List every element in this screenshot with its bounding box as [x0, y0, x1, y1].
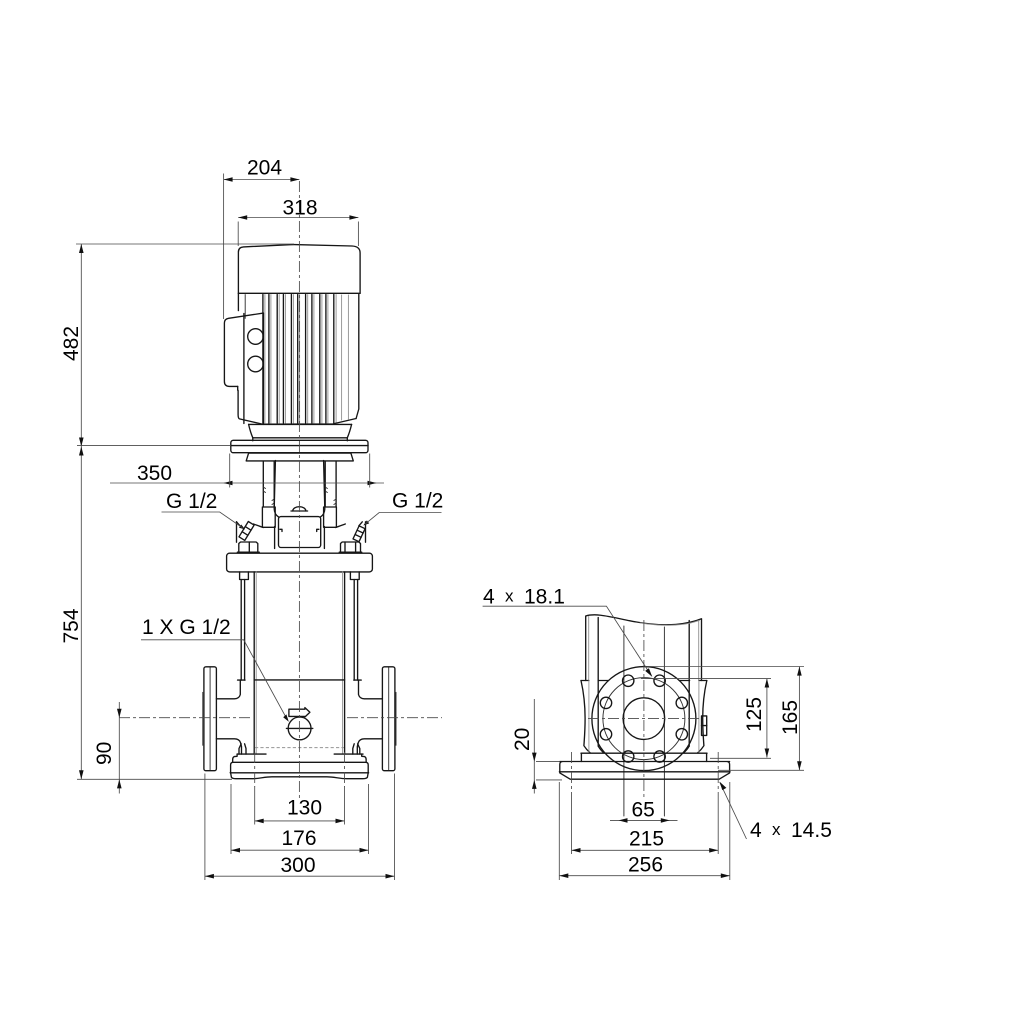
- svg-text:176: 176: [282, 827, 317, 850]
- svg-text:x: x: [772, 820, 781, 839]
- svg-text:4: 4: [483, 585, 495, 608]
- svg-text:90: 90: [93, 742, 116, 765]
- svg-text:G 1/2: G 1/2: [392, 490, 443, 513]
- svg-text:204: 204: [247, 157, 282, 180]
- svg-text:256: 256: [628, 854, 663, 877]
- svg-text:20: 20: [511, 728, 534, 751]
- svg-text:18.1: 18.1: [524, 585, 565, 608]
- svg-text:130: 130: [287, 797, 322, 820]
- svg-text:4: 4: [750, 819, 762, 842]
- svg-text:x: x: [505, 587, 514, 606]
- svg-text:14.5: 14.5: [791, 819, 832, 842]
- svg-text:65: 65: [632, 799, 655, 822]
- svg-text:318: 318: [283, 197, 318, 220]
- svg-text:165: 165: [779, 700, 802, 735]
- svg-text:1 X G 1/2: 1 X G 1/2: [142, 616, 231, 639]
- svg-text:215: 215: [629, 828, 664, 851]
- svg-text:300: 300: [281, 854, 316, 877]
- svg-text:125: 125: [743, 697, 766, 732]
- svg-text:482: 482: [60, 326, 83, 361]
- svg-text:754: 754: [60, 608, 83, 643]
- svg-text:G 1/2: G 1/2: [166, 490, 217, 513]
- svg-text:350: 350: [137, 462, 172, 485]
